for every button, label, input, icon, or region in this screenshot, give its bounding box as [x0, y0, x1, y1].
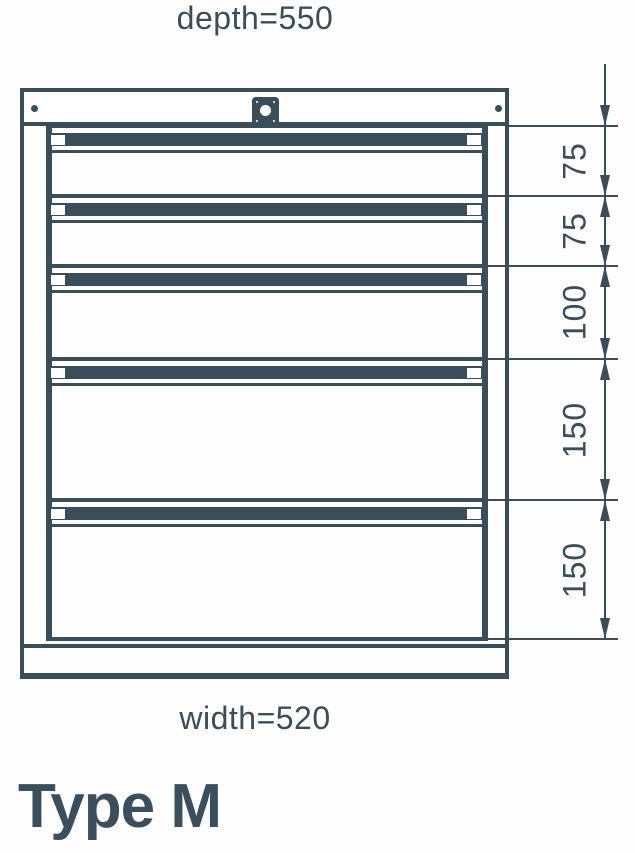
- handle-notch: [467, 368, 481, 378]
- extension-line: [488, 358, 618, 360]
- drawer-divider-line: [46, 124, 488, 128]
- rivet-icon: [273, 101, 275, 103]
- cabinet-right-wall: [505, 126, 509, 679]
- handle-notch: [51, 368, 65, 378]
- drawer-divider-line: [46, 637, 488, 641]
- handle-notch: [51, 275, 65, 285]
- drawer-handle: [46, 507, 488, 520]
- rivet-icon: [256, 120, 258, 122]
- drawer-front-top-line: [49, 290, 485, 293]
- drawer-handle: [46, 203, 488, 216]
- extension-line: [488, 195, 618, 197]
- handle-notch: [467, 135, 481, 145]
- extension-line: [488, 265, 618, 267]
- arrow-down-icon: [600, 479, 610, 500]
- drawer-handle: [46, 366, 488, 379]
- handle-notch: [467, 205, 481, 215]
- arrow-down-icon: [600, 105, 610, 126]
- handle-notch: [51, 509, 65, 519]
- page-title: Type M: [18, 776, 221, 838]
- arrow-up-icon: [600, 266, 610, 287]
- extension-line: [488, 638, 618, 640]
- technical-drawing-page: depth=550: [0, 0, 635, 853]
- drawer-front-top-line: [49, 150, 485, 153]
- lock-bracket: [252, 97, 279, 126]
- width-dimension-label: width=520: [0, 700, 510, 737]
- arrow-down-icon: [600, 338, 610, 359]
- drawer-height-label: 100: [557, 284, 594, 340]
- rivet-icon: [256, 101, 258, 103]
- drawer-handle: [46, 133, 488, 146]
- arrow-up-icon: [600, 196, 610, 217]
- drawer-height-label: 75: [557, 142, 594, 180]
- handle-notch: [467, 275, 481, 285]
- drawer-height-label: 150: [557, 402, 594, 458]
- extension-line: [488, 499, 618, 501]
- rivet-icon: [273, 120, 275, 122]
- arrow-up-icon: [600, 500, 610, 521]
- screw-hole-icon: [495, 105, 502, 112]
- handle-notch: [51, 205, 65, 215]
- base-deck-line: [24, 644, 505, 648]
- cabinet-left-wall: [20, 126, 24, 679]
- screw-hole-icon: [31, 105, 38, 112]
- drawer-front-top-line: [49, 524, 485, 527]
- drawer-divider-line: [46, 498, 488, 502]
- handle-notch: [51, 135, 65, 145]
- drawer-height-label: 150: [557, 542, 594, 598]
- drawer-divider-line: [46, 264, 488, 268]
- drawer-divider-line: [46, 357, 488, 361]
- drawer-handle: [46, 273, 488, 286]
- arrow-down-icon: [600, 175, 610, 196]
- depth-dimension-label: depth=550: [0, 0, 510, 37]
- handle-notch: [467, 509, 481, 519]
- keyhole-icon: [260, 105, 271, 116]
- drawer-front-top-line: [49, 220, 485, 223]
- arrow-down-icon: [600, 245, 610, 266]
- arrow-down-icon: [600, 618, 610, 639]
- cabinet-base: [20, 673, 509, 679]
- drawer-front-top-line: [49, 383, 485, 386]
- drawer-divider-line: [46, 194, 488, 198]
- drawer-height-label: 75: [557, 212, 594, 250]
- arrow-up-icon: [600, 359, 610, 380]
